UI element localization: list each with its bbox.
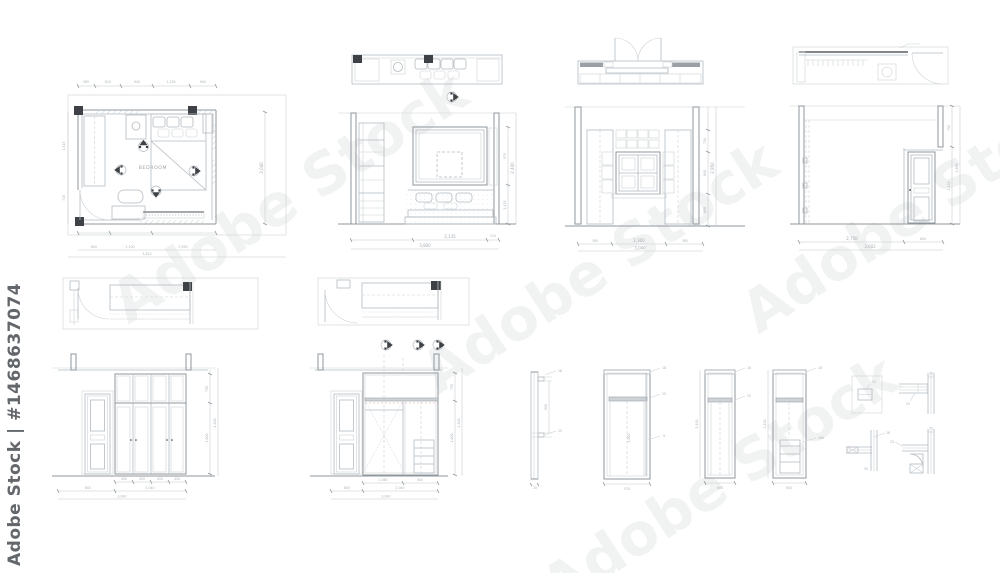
dim-label: 2,040	[145, 486, 154, 490]
door-leaf	[85, 394, 110, 474]
dim-label: 940	[134, 80, 140, 84]
elevation-marker-left	[114, 165, 126, 175]
dim-label: 900	[544, 404, 548, 410]
dim-label: 600	[717, 486, 723, 490]
dim-label: 3,040	[381, 495, 390, 499]
dim-label: 380	[592, 239, 598, 243]
plan-desk-chair	[112, 190, 145, 219]
diagonal-watermark: Adobe Stock	[729, 66, 1000, 347]
detail-note: 30	[864, 467, 868, 471]
column	[74, 106, 83, 115]
drawer-stack	[414, 440, 434, 473]
wardrobe-elevation-doors: 750 1,800 2,400 450 450 450 450 800 2,04…	[52, 354, 218, 499]
section-note: 18	[662, 366, 666, 370]
plan-wardrobe	[84, 116, 105, 186]
dim-label: 1,425	[503, 200, 507, 209]
dim-label: 750	[205, 386, 209, 392]
dim-label: 585	[83, 80, 89, 84]
elevation-c-plan-strip	[793, 44, 948, 84]
dim-label: 2,400	[457, 418, 461, 427]
section-note: 9	[663, 434, 665, 438]
dim-label: 800	[344, 486, 350, 490]
dim-label: 1,100	[125, 245, 134, 249]
joinery-detail-bl: 18 30	[846, 430, 890, 471]
hanging-clothes-symbol	[362, 283, 438, 308]
dim-label: 2,135	[444, 234, 456, 239]
dim-label: 750	[947, 125, 951, 131]
detail-note: 18	[886, 431, 890, 435]
plan-bed	[151, 114, 206, 190]
dim-label: 3,800	[419, 243, 431, 248]
dim-label: 450	[139, 477, 145, 481]
wardrobe-front	[115, 374, 186, 474]
dim-label: 450	[121, 477, 127, 481]
cad-sheet-svg: Adobe Stock Adobe Stock Adobe Stock Adob…	[0, 0, 1000, 573]
dim-label: 450	[157, 477, 163, 481]
drawing-sheet: Adobe Stock Adobe Stock Adobe Stock Adob…	[0, 0, 1000, 573]
dim-label: 975	[503, 153, 507, 159]
view-direction-marker	[381, 340, 393, 350]
dim-label: 1,800	[627, 433, 631, 442]
elevation-a-bed	[405, 190, 496, 224]
dim-label: 2,885	[955, 163, 959, 172]
plan-nightstand	[203, 114, 213, 133]
dim-label: 2,400	[695, 419, 699, 428]
dim-label: 750	[703, 138, 707, 144]
dim-label: 720	[62, 195, 66, 201]
section-note: 18	[747, 366, 751, 370]
dim-label: 20	[533, 486, 537, 490]
dim-label: 2,750	[846, 236, 858, 241]
dim-label: 450	[174, 477, 180, 481]
plan-door	[80, 190, 110, 220]
dim-label: 2,300	[633, 238, 645, 243]
stock-watermark-label: Adobe Stock | #1468637074	[5, 283, 25, 566]
cabinet-section-2: 18 25 9 1,800 570	[603, 366, 666, 491]
dim-label: 600	[703, 207, 707, 213]
dim-label: 800	[85, 486, 91, 490]
dim-label: 750	[450, 384, 454, 390]
dim-label: 3,040	[117, 495, 126, 499]
dim-label: 1,080	[378, 478, 387, 482]
section-note: 25	[662, 392, 666, 396]
dim-label: 570	[624, 487, 630, 491]
dim-label: 800	[91, 245, 97, 249]
column	[75, 217, 84, 226]
dim-label: 1,800	[450, 433, 454, 442]
wardrobe-carcass	[363, 355, 438, 475]
detail-note: 25	[906, 402, 910, 406]
section-note: 18	[818, 366, 822, 370]
dim-label: 640	[200, 80, 206, 84]
dim-label: 1,230	[166, 80, 175, 84]
dim-label: 75	[929, 427, 933, 431]
dim-label: 1,950	[178, 245, 187, 249]
dim-label: 3,602	[864, 244, 876, 249]
section-note: 160	[818, 436, 824, 440]
elevation-a-side-panel	[489, 128, 497, 185]
dim-label: 3,810	[142, 252, 151, 256]
plan-dresser	[126, 115, 146, 139]
dim-label: 2,040	[395, 486, 404, 490]
dim-label: 800	[920, 237, 926, 241]
cabinet-section-1: 18 25 900 20	[530, 369, 562, 490]
dim-label: 510	[490, 234, 496, 238]
dim-label: 2,135	[947, 181, 951, 190]
dim-label: 3,040	[634, 246, 646, 251]
diagonal-watermarks: Adobe Stock Adobe Stock Adobe Stock Adob…	[99, 56, 1000, 573]
section-note: 18	[558, 369, 562, 373]
joinery-detail-br: 75 25	[890, 427, 934, 475]
dim-label: 75	[929, 372, 933, 376]
dim-label: 3,040	[259, 162, 264, 174]
section-note: 25	[747, 394, 751, 398]
dim-label: 600	[786, 486, 792, 490]
door-leaf	[334, 394, 359, 474]
diagonal-watermark: Adobe Stock	[529, 341, 911, 573]
dim-label: 2,400	[510, 162, 515, 174]
dim-label: 940	[417, 478, 423, 482]
detail-note: 25	[890, 440, 894, 444]
dim-label: 810	[105, 80, 111, 84]
dim-label: 2,950	[710, 162, 715, 174]
elevation-marker-up	[139, 140, 149, 152]
dim-label: 840	[703, 170, 707, 176]
section-note: 25	[558, 429, 562, 433]
elevation-b-plan-strip	[578, 38, 703, 84]
elevation-a: 975 1,425 2,400 2,135 510 3,800	[338, 55, 516, 249]
dim-label: 2,400	[213, 418, 217, 427]
joinery-detail-tr: 75 25	[899, 372, 934, 415]
dim-label: 2,400	[763, 419, 767, 428]
dim-label: 1,415	[62, 141, 66, 150]
dim-label: 380	[682, 239, 688, 243]
elevation-marker-right	[189, 166, 201, 176]
room-label: BEDROOM	[139, 165, 167, 171]
elevation-marker-down	[151, 186, 161, 198]
detail-note: 12	[872, 380, 876, 384]
dim-label: 1,800	[205, 433, 209, 442]
